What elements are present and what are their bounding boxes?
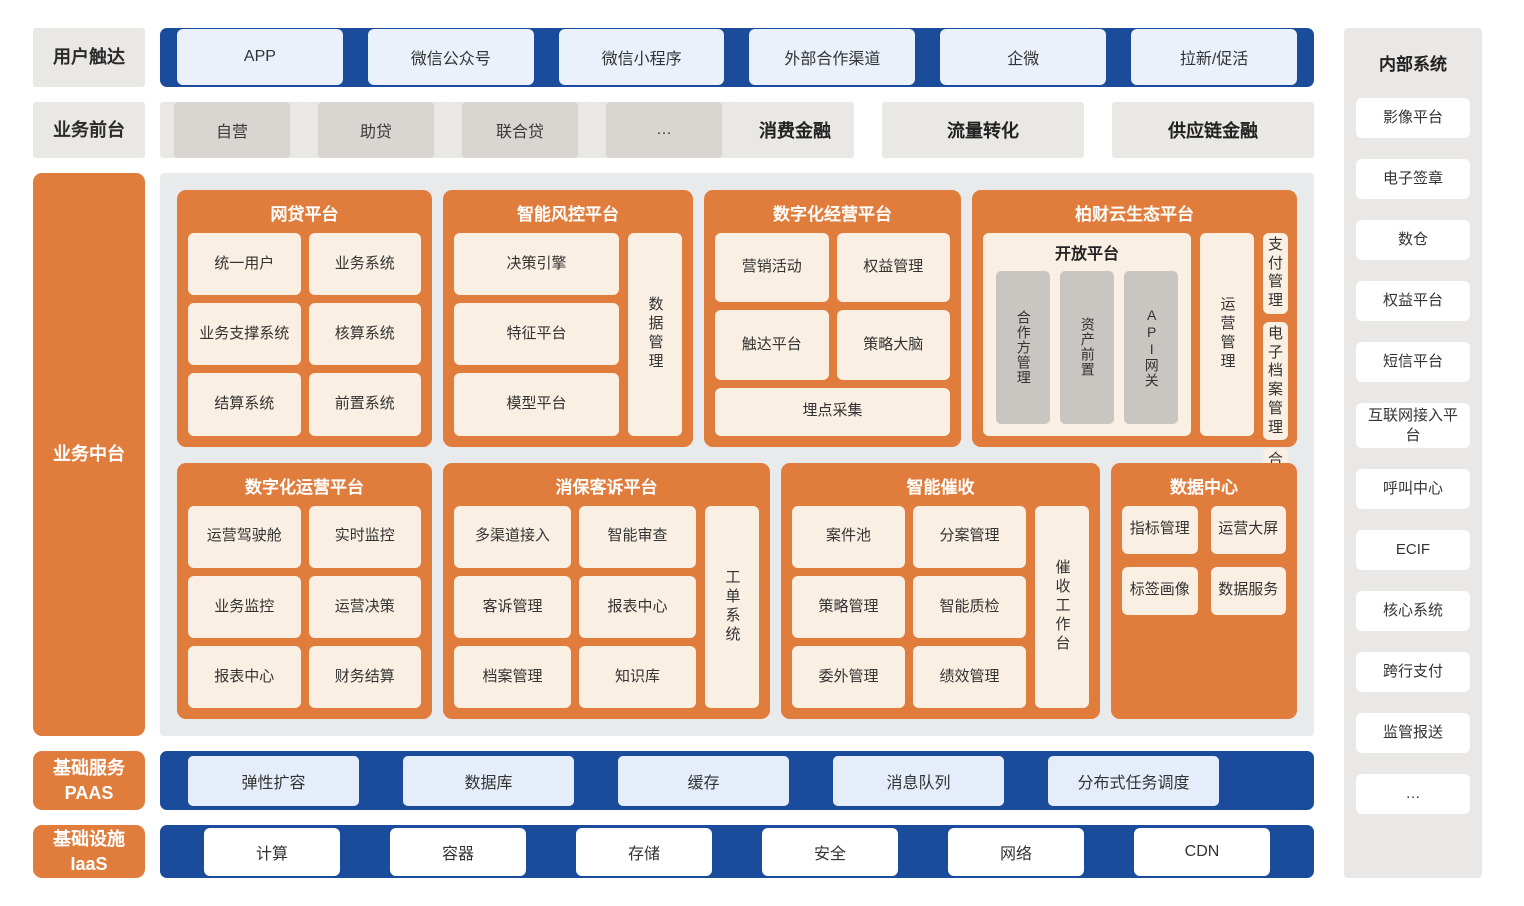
middle-office-panel: 网贷平台 统一用户 业务系统 业务支撑系统 核算系统 结算系统 前置系统 智能风… (160, 173, 1314, 737)
layer-label-user-reach: 用户触达 (33, 28, 145, 87)
cell-decision-engine: 决策引擎 (454, 233, 619, 295)
platform-body: 多渠道接入 智能审查 客诉管理 报表中心 档案管理 知识库 工单系统 (454, 506, 759, 709)
cell-operation-management: 运营管理 (1200, 233, 1254, 436)
layer-label-middle-office: 业务中台 (33, 173, 145, 737)
paas-label-line1: 基础服务 (53, 756, 125, 780)
user-reach-bar: APP 微信公众号 微信小程序 外部合作渠道 企微 拉新/促活 (160, 28, 1314, 87)
cell-reach-platform: 触达平台 (715, 310, 829, 379)
platform-body: 决策引擎 特征平台 模型平台 数据管理 (454, 233, 682, 436)
cell-metric-management: 指标管理 (1122, 506, 1198, 554)
platform-card-digital-marketing: 数字化经营平台 营销活动 权益管理 触达平台 策略大脑 埋点采集 (704, 190, 961, 447)
iaas-cdn: CDN (1134, 828, 1270, 876)
cell-e-archive-management: 电子档案管理 (1263, 322, 1288, 441)
iaas-network: 网络 (948, 828, 1084, 876)
platform-body: 营销活动 权益管理 触达平台 策略大脑 埋点采集 (715, 233, 950, 436)
iaas-container: 容器 (390, 828, 526, 876)
cell-multichannel-access: 多渠道接入 (454, 506, 571, 568)
layer-label-iaas: 基础设施 IaaS (33, 825, 145, 878)
front-box-joint-loan: 联合贷 (462, 102, 578, 158)
architecture-diagram: 用户触达 APP 微信公众号 微信小程序 外部合作渠道 企微 拉新/促活 业务前… (0, 0, 1524, 906)
cell-report-center: 报表中心 (188, 646, 301, 708)
iaas-label-line1: 基础设施 (53, 827, 125, 851)
system-ecif: ECIF (1356, 530, 1470, 570)
paas-label-line2: PAAS (65, 781, 114, 805)
cell-operation-cockpit: 运营驾驶舱 (188, 506, 301, 568)
iaas-bar: 计算 容器 存储 安全 网络 CDN (160, 825, 1314, 878)
cell-collection-workbench: 催收工作台 (1035, 506, 1089, 709)
cell-smart-review: 智能审查 (579, 506, 696, 568)
platform-row-2: 数字化运营平台 运营驾驶舱 实时监控 业务监控 运营决策 报表中心 财务结算 消… (177, 463, 1297, 720)
platform-body: 开放平台 合作方管理 资产前置 API网关 运营管理 支付管理 电子档案 (983, 233, 1286, 436)
cell-operation-dashboard: 运营大屏 (1211, 506, 1287, 554)
cell-model-platform: 模型平台 (454, 373, 619, 435)
system-call-center: 呼叫中心 (1356, 469, 1470, 509)
cell-settlement-system: 结算系统 (188, 373, 301, 435)
platform-title: 柏财云生态平台 (983, 197, 1286, 233)
pillar-api-gateway: API网关 (1124, 271, 1178, 424)
cell-tracking-collection: 埋点采集 (715, 388, 950, 436)
system-interbank-payment: 跨行支付 (1356, 652, 1470, 692)
main-layers: 用户触达 APP 微信公众号 微信小程序 外部合作渠道 企微 拉新/促活 业务前… (33, 28, 1314, 878)
layer-paas: 基础服务 PAAS 弹性扩容 数据库 缓存 消息队列 分布式任务调度 (33, 751, 1314, 810)
cell-feature-platform: 特征平台 (454, 303, 619, 365)
cell-knowledge-base: 知识库 (579, 646, 696, 708)
open-platform-group: 开放平台 合作方管理 资产前置 API网关 (983, 233, 1191, 436)
platform-title: 数字化运营平台 (188, 470, 421, 506)
front-box-more: … (606, 102, 722, 158)
front-box-self-operated: 自营 (174, 102, 290, 158)
cell-data-management: 数据管理 (628, 233, 682, 436)
system-more: … (1356, 774, 1470, 814)
cell-unified-user: 统一用户 (188, 233, 301, 295)
platform-cells: 统一用户 业务系统 业务支撑系统 核算系统 结算系统 前置系统 (188, 233, 421, 436)
cell-business-monitoring: 业务监控 (188, 576, 301, 638)
cell-complaint-management: 客诉管理 (454, 576, 571, 638)
open-platform-title: 开放平台 (996, 240, 1178, 264)
paas-message-queue: 消息队列 (833, 756, 1004, 806)
channel-wechat-miniprogram: 微信小程序 (559, 29, 725, 85)
cell-rights-management: 权益管理 (837, 233, 951, 302)
system-regulatory-reporting: 监管报送 (1356, 713, 1470, 753)
system-sms-platform: 短信平台 (1356, 342, 1470, 382)
cell-front-system: 前置系统 (309, 373, 422, 435)
pillar-asset-front: 资产前置 (1060, 271, 1114, 424)
cell-tag-portrait: 标签画像 (1122, 567, 1198, 615)
platform-cells: 指标管理 运营大屏 标签画像 数据服务 (1122, 506, 1286, 709)
layer-label-front-office: 业务前台 (33, 102, 145, 158)
cell-case-assignment: 分案管理 (913, 506, 1026, 568)
cell-strategy-brain: 策略大脑 (837, 310, 951, 379)
internal-systems-title: 内部系统 (1356, 44, 1470, 77)
platform-title: 消保客诉平台 (454, 470, 759, 506)
platform-cells: 多渠道接入 智能审查 客诉管理 报表中心 档案管理 知识库 (454, 506, 696, 709)
channel-acquisition: 拉新/促活 (1131, 29, 1297, 85)
iaas-compute: 计算 (204, 828, 340, 876)
cell-ticket-system: 工单系统 (705, 506, 759, 709)
pillar-partner-management: 合作方管理 (996, 271, 1050, 424)
layer-iaas: 基础设施 IaaS 计算 容器 存储 安全 网络 CDN (33, 825, 1314, 878)
layer-label-paas: 基础服务 PAAS (33, 751, 145, 810)
system-internet-access-platform: 互联网接入平台 (1356, 403, 1470, 448)
platform-cells: 支付管理 电子档案管理 合同管理 (1263, 233, 1288, 436)
paas-elastic-scaling: 弹性扩容 (188, 756, 359, 806)
system-rights-platform: 权益平台 (1356, 281, 1470, 321)
platform-card-digital-operation: 数字化运营平台 运营驾驶舱 实时监控 业务监控 运营决策 报表中心 财务结算 (177, 463, 432, 720)
platform-title: 网贷平台 (188, 197, 421, 233)
platform-title: 智能风控平台 (454, 197, 682, 233)
platform-cells: 营销活动 权益管理 触达平台 策略大脑 (715, 233, 950, 380)
platform-cells: 决策引擎 特征平台 模型平台 (454, 233, 619, 436)
platform-card-consumer-protection: 消保客诉平台 多渠道接入 智能审查 客诉管理 报表中心 档案管理 知识库 工单系… (443, 463, 770, 720)
cell-smart-quality-check: 智能质检 (913, 576, 1026, 638)
platform-cells: 案件池 分案管理 策略管理 智能质检 委外管理 绩效管理 (792, 506, 1026, 709)
paas-cache: 缓存 (618, 756, 789, 806)
cell-business-system: 业务系统 (309, 233, 422, 295)
cell-archive-management: 档案管理 (454, 646, 571, 708)
consumer-finance-group: 自营 助贷 联合贷 … 消费金融 (160, 102, 854, 158)
platform-title: 数据中心 (1122, 470, 1286, 506)
cell-strategy-management: 策略管理 (792, 576, 905, 638)
platform-body: 案件池 分案管理 策略管理 智能质检 委外管理 绩效管理 催收工作台 (792, 506, 1089, 709)
iaas-storage: 存储 (576, 828, 712, 876)
platform-title: 数字化经营平台 (715, 197, 950, 233)
layer-front-office: 业务前台 自营 助贷 联合贷 … 消费金融 流量转化 供应链金融 (33, 102, 1314, 158)
system-e-signature: 电子签章 (1356, 159, 1470, 199)
platform-card-ecosystem: 柏财云生态平台 开放平台 合作方管理 资产前置 API网关 运营管理 (972, 190, 1297, 447)
system-core-system: 核心系统 (1356, 591, 1470, 631)
front-block-supply-chain-finance: 供应链金融 (1112, 102, 1314, 158)
platform-card-data-center: 数据中心 指标管理 运营大屏 标签画像 数据服务 (1111, 463, 1297, 720)
cell-outsourcing-management: 委外管理 (792, 646, 905, 708)
cell-realtime-monitoring: 实时监控 (309, 506, 422, 568)
channel-app: APP (177, 29, 343, 85)
system-data-warehouse: 数仓 (1356, 220, 1470, 260)
channel-external-partner: 外部合作渠道 (749, 29, 915, 85)
cell-case-pool: 案件池 (792, 506, 905, 568)
channel-wecom: 企微 (940, 29, 1106, 85)
iaas-security: 安全 (762, 828, 898, 876)
front-block-traffic-conversion: 流量转化 (882, 102, 1084, 158)
cell-marketing-activity: 营销活动 (715, 233, 829, 302)
platform-card-risk-control: 智能风控平台 决策引擎 特征平台 模型平台 数据管理 (443, 190, 693, 447)
cell-business-support: 业务支撑系统 (188, 303, 301, 365)
paas-database: 数据库 (403, 756, 574, 806)
layer-user-reach: 用户触达 APP 微信公众号 微信小程序 外部合作渠道 企微 拉新/促活 (33, 28, 1314, 87)
internal-systems-panel: 内部系统 影像平台 电子签章 数仓 权益平台 短信平台 互联网接入平台 呼叫中心… (1344, 28, 1482, 878)
cell-performance-management: 绩效管理 (913, 646, 1026, 708)
cell-financial-settlement: 财务结算 (309, 646, 422, 708)
cell-payment-management: 支付管理 (1263, 233, 1288, 314)
open-platform-pillars: 合作方管理 资产前置 API网关 (996, 271, 1178, 424)
system-image-platform: 影像平台 (1356, 98, 1470, 138)
consumer-finance-label: 消费金融 (750, 117, 840, 143)
platform-cells: 运营驾驶舱 实时监控 业务监控 运营决策 报表中心 财务结算 (188, 506, 421, 709)
paas-bar: 弹性扩容 数据库 缓存 消息队列 分布式任务调度 (160, 751, 1314, 810)
cell-operation-decision: 运营决策 (309, 576, 422, 638)
channel-wechat-official: 微信公众号 (368, 29, 534, 85)
paas-distributed-scheduler: 分布式任务调度 (1048, 756, 1219, 806)
cell-report-center: 报表中心 (579, 576, 696, 638)
front-office-content: 自营 助贷 联合贷 … 消费金融 流量转化 供应链金融 (160, 102, 1314, 158)
cell-accounting-system: 核算系统 (309, 303, 422, 365)
iaas-label-line2: IaaS (70, 852, 107, 876)
platform-card-online-loan: 网贷平台 统一用户 业务系统 业务支撑系统 核算系统 结算系统 前置系统 (177, 190, 432, 447)
platform-title: 智能催收 (792, 470, 1089, 506)
platform-row-1: 网贷平台 统一用户 业务系统 业务支撑系统 核算系统 结算系统 前置系统 智能风… (177, 190, 1297, 447)
platform-card-collection: 智能催收 案件池 分案管理 策略管理 智能质检 委外管理 绩效管理 催收工作台 (781, 463, 1100, 720)
front-box-loan-assist: 助贷 (318, 102, 434, 158)
cell-data-service: 数据服务 (1211, 567, 1287, 615)
layer-middle-office: 业务中台 网贷平台 统一用户 业务系统 业务支撑系统 核算系统 结算系统 前置系… (33, 173, 1314, 737)
